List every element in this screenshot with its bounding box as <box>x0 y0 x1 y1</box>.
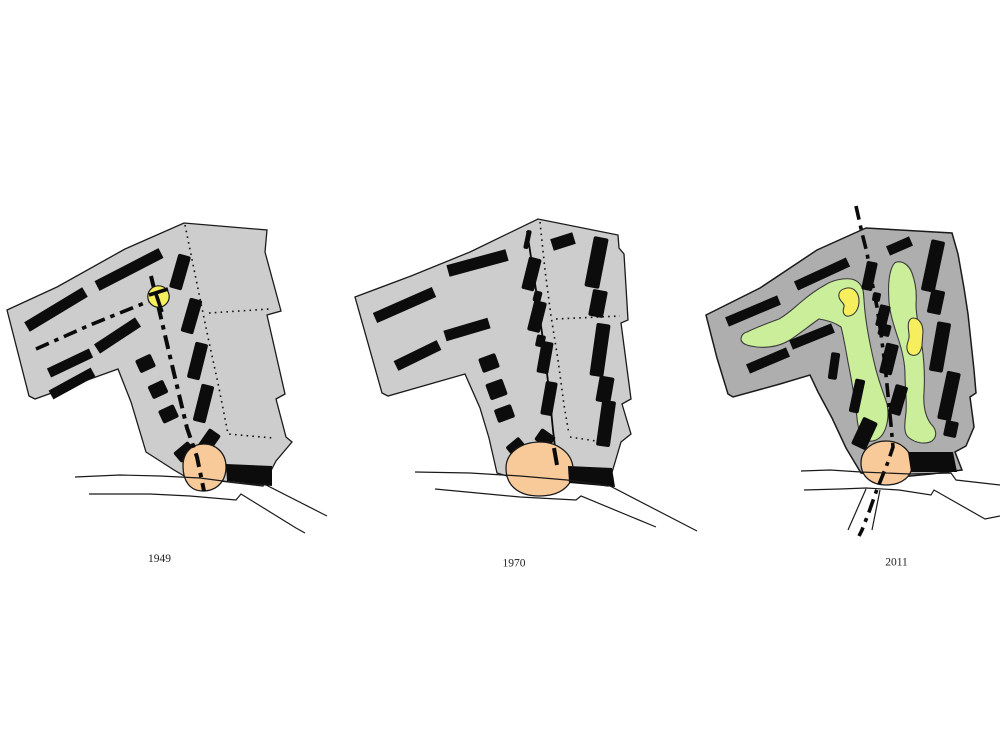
svg-text:2011: 2011 <box>885 557 908 569</box>
svg-text:1970: 1970 <box>503 558 526 570</box>
svg-text:1949: 1949 <box>148 553 171 565</box>
